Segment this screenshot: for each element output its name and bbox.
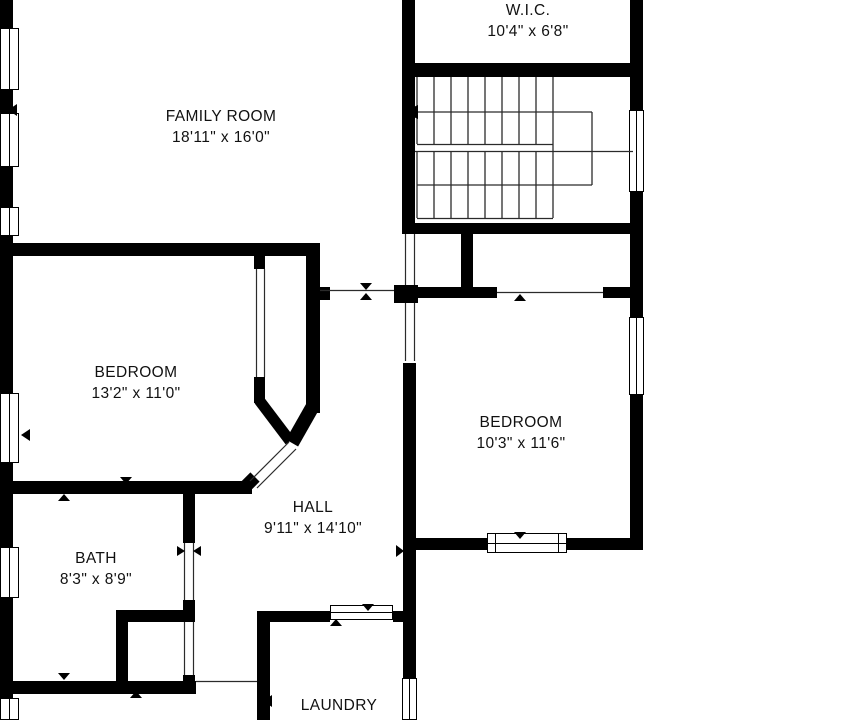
room-dims: 9'11" x 14'10" <box>264 518 362 539</box>
window <box>403 679 417 720</box>
wall-segment <box>0 167 13 207</box>
window <box>1 114 19 167</box>
cased-opening <box>406 234 415 285</box>
wall-segment <box>461 233 473 297</box>
room-label-wic: W.I.C. 10'4" x 6'8" <box>487 0 568 42</box>
wall-segment <box>0 243 320 256</box>
wall-segment <box>407 287 497 298</box>
tick-marker <box>193 546 201 556</box>
tick-marker <box>396 545 404 557</box>
stair-treads-upper <box>417 77 553 152</box>
window <box>630 318 644 395</box>
room-label-bedroom-right: BEDROOM 10'3" x 11'6" <box>476 412 565 454</box>
tick-marker <box>330 619 342 626</box>
closet-door <box>257 269 265 377</box>
wall-segment <box>254 255 265 269</box>
wall-segment <box>403 540 416 678</box>
wall-segment <box>306 243 320 413</box>
room-dims: 10'3" x 11'6" <box>476 433 565 454</box>
wall-segment <box>403 363 416 550</box>
room-name: BATH <box>75 550 117 567</box>
room-label-hall: HALL 9'11" x 14'10" <box>264 497 362 539</box>
window <box>1 208 19 236</box>
tick-marker <box>360 283 372 290</box>
window <box>1 699 19 720</box>
wall-segment <box>630 0 643 110</box>
staircase <box>403 77 633 219</box>
room-name: W.I.C. <box>506 2 551 19</box>
floor-plan-geometry <box>0 0 851 720</box>
room-label-bedroom-left: BEDROOM 13'2" x 11'0" <box>91 362 180 404</box>
wall-segment <box>402 63 643 77</box>
wall-segment <box>259 400 290 441</box>
room-label-family-room: FAMILY ROOM 18'11" x 16'0" <box>166 106 277 148</box>
wall-segment <box>394 285 418 303</box>
wall-segment <box>243 477 255 489</box>
stair-walk-line <box>417 112 592 185</box>
window <box>1 394 19 463</box>
wall-segment <box>6 681 196 694</box>
tick-marker <box>58 673 70 680</box>
chamfer-walls <box>243 400 313 489</box>
door-opening <box>185 622 194 675</box>
tick-marker <box>58 494 70 501</box>
dimension-ticks <box>8 63 555 707</box>
wall-segment <box>318 287 330 300</box>
wall-segment <box>630 230 643 318</box>
tick-marker <box>21 429 30 441</box>
room-dims: 8'3" x 8'9" <box>60 569 132 590</box>
room-name: BEDROOM <box>480 414 563 431</box>
room-name: LAUNDRY <box>301 697 378 714</box>
wall-segment <box>0 463 13 547</box>
room-name: BEDROOM <box>95 364 178 381</box>
walls <box>0 0 643 720</box>
wall-segment <box>630 395 643 550</box>
wall-segment <box>0 0 13 30</box>
wall-segment <box>0 236 13 393</box>
wall-segment <box>116 610 194 622</box>
window <box>1 29 19 90</box>
room-dims: 18'11" x 16'0" <box>166 127 277 148</box>
tick-marker <box>514 294 526 301</box>
room-name: HALL <box>293 499 333 516</box>
wall-segment <box>603 287 633 298</box>
door-opening <box>406 303 415 361</box>
room-name: FAMILY ROOM <box>166 108 277 125</box>
room-dims: 10'4" x 6'8" <box>487 21 568 42</box>
tick-marker <box>360 293 372 300</box>
floor-plan: W.I.C. 10'4" x 6'8" FAMILY ROOM 18'11" x… <box>0 0 851 720</box>
room-label-laundry: LAUNDRY <box>301 695 378 716</box>
wall-segment <box>257 611 330 622</box>
window <box>331 606 393 620</box>
window <box>488 534 567 553</box>
tick-marker <box>177 546 185 556</box>
wall-segment <box>183 493 195 543</box>
wall-segment <box>402 223 643 234</box>
door-opening <box>185 543 194 600</box>
wall-segment <box>292 406 313 443</box>
wall-segment <box>402 0 415 234</box>
room-label-bath: BATH 8'3" x 8'9" <box>60 548 132 590</box>
room-dims: 13'2" x 11'0" <box>91 383 180 404</box>
window <box>1 548 19 598</box>
